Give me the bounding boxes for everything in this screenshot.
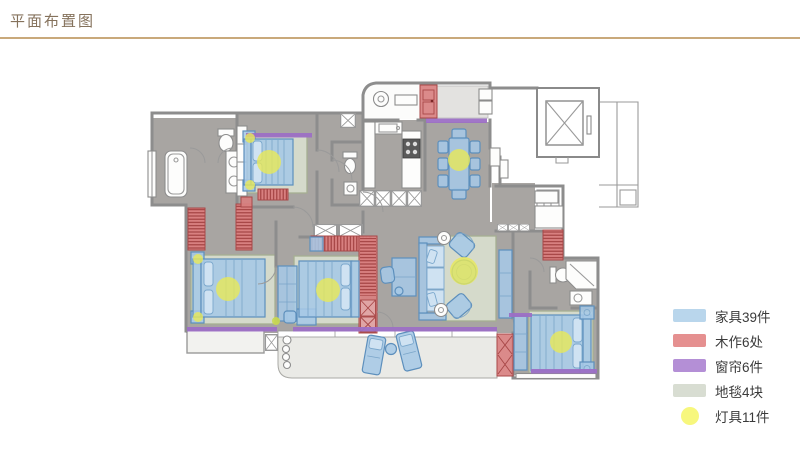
bed-headboard <box>244 139 251 185</box>
chair <box>438 158 448 170</box>
wardrobe <box>543 230 563 260</box>
legend-item-lights: 灯具11件 <box>673 408 771 423</box>
legend-label: 灯具11件 <box>715 406 770 426</box>
tv-cabinet <box>499 250 512 318</box>
bedside-lamp <box>193 254 203 264</box>
curtain <box>187 327 277 332</box>
desk-chair <box>284 311 296 323</box>
legend-item-furniture: 家具39件 <box>673 308 771 323</box>
shaft <box>341 114 356 128</box>
curtain <box>426 119 487 124</box>
balcony <box>187 330 497 378</box>
carpets-swatch <box>673 384 706 397</box>
desk-lamp <box>272 317 280 325</box>
legend-label: 家具39件 <box>715 306 771 326</box>
ceiling-light <box>550 331 572 353</box>
bedside-lamp <box>245 180 255 190</box>
counter <box>364 122 375 188</box>
floor-lamp <box>438 232 451 245</box>
chair <box>470 175 480 187</box>
sofa-back <box>419 243 427 313</box>
chair <box>438 141 448 153</box>
legend: 家具39件 木作6处 窗帘6件 地毯4块 灯具11件 <box>673 308 771 423</box>
floor-lamp <box>435 304 448 317</box>
side-table <box>386 344 397 355</box>
legend-label: 地毯4块 <box>715 381 763 401</box>
pillow <box>341 288 350 310</box>
cabinet <box>310 237 323 251</box>
nightstand <box>580 306 594 319</box>
stove <box>403 139 420 158</box>
ceiling-light <box>450 257 478 285</box>
tv-cabinet <box>514 316 527 370</box>
bedside-lamp <box>193 312 203 322</box>
balcony-cabinet <box>497 334 513 376</box>
wardrobe <box>188 208 205 250</box>
toilet <box>343 152 357 158</box>
sink <box>570 291 592 305</box>
pillow <box>341 264 350 286</box>
decor <box>283 336 291 344</box>
curtains-swatch <box>673 359 706 372</box>
ceiling-light <box>216 277 240 301</box>
curtain <box>531 369 597 374</box>
curtain <box>509 313 532 317</box>
furniture-swatch <box>673 309 706 322</box>
bedside-lamp <box>245 133 255 143</box>
legend-label: 窗帘6件 <box>715 356 763 376</box>
entry-storage <box>535 191 558 203</box>
entry-door <box>490 148 500 166</box>
pillow <box>573 318 582 342</box>
pillow <box>204 262 213 286</box>
bed-bench <box>258 189 288 200</box>
legend-item-woodwork: 木作6处 <box>673 333 771 348</box>
chair <box>438 175 448 187</box>
ceiling-light <box>316 278 340 302</box>
legend-label: 木作6处 <box>715 331 763 351</box>
desk-chair <box>380 266 395 284</box>
window <box>516 374 596 379</box>
wardrobe <box>236 204 252 250</box>
legend-item-carpets: 地毯4块 <box>673 383 771 398</box>
curtain <box>293 327 497 332</box>
pillow <box>204 290 213 314</box>
bed-headboard <box>351 261 359 317</box>
bed-headboard <box>193 259 201 317</box>
legend-item-curtains: 窗帘6件 <box>673 358 771 373</box>
slide: 平面布置图 <box>0 0 800 450</box>
woodwork-swatch <box>673 334 706 347</box>
lights-swatch <box>681 407 699 425</box>
chair <box>470 141 480 153</box>
ceiling-light <box>257 150 281 174</box>
sofa-cushion <box>427 268 444 289</box>
sink <box>344 182 357 195</box>
chair <box>470 158 480 170</box>
neighbor-unit <box>599 102 638 207</box>
ceiling-light <box>448 149 470 171</box>
curtain <box>246 133 312 138</box>
